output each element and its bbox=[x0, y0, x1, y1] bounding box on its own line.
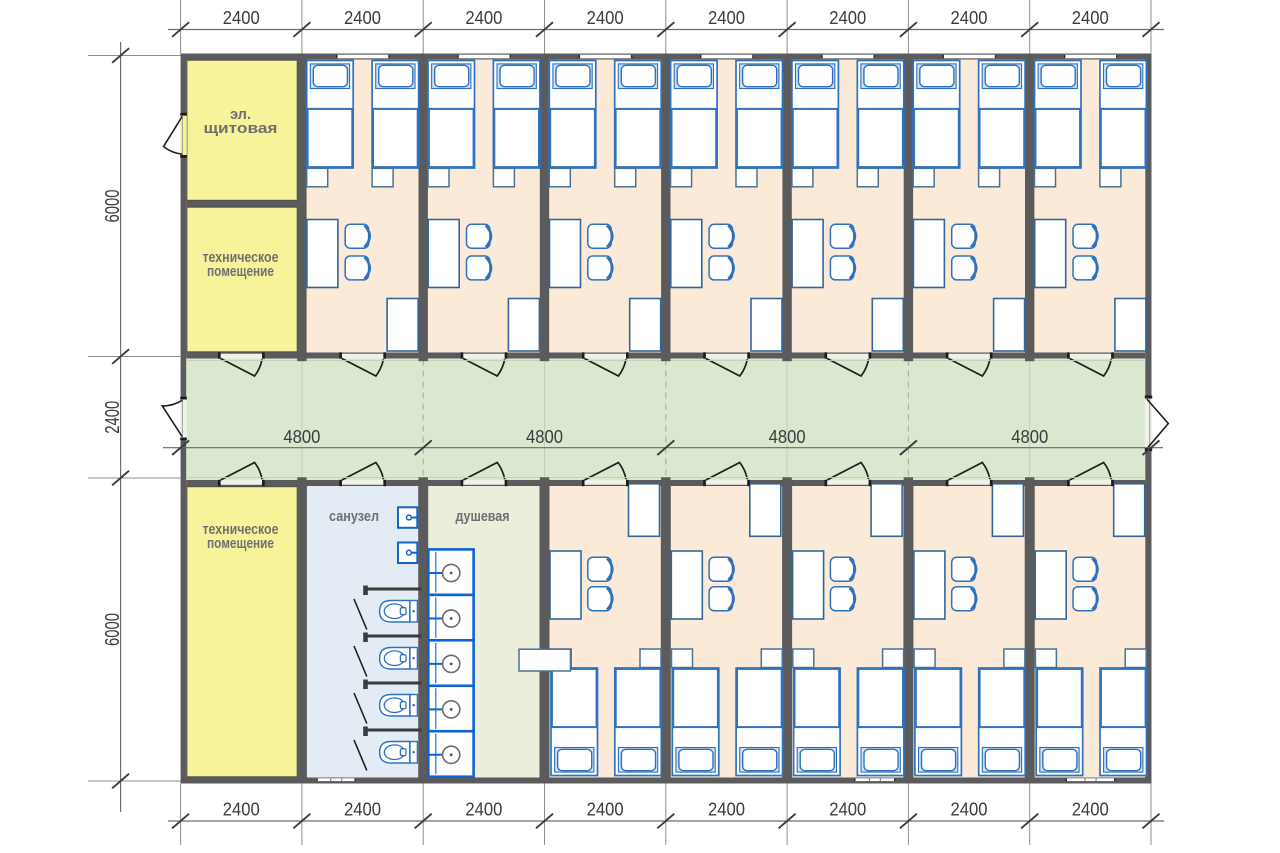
svg-text:2400: 2400 bbox=[465, 799, 502, 820]
svg-text:2400: 2400 bbox=[829, 799, 866, 820]
svg-text:2400: 2400 bbox=[102, 401, 124, 434]
svg-text:2400: 2400 bbox=[708, 799, 745, 820]
svg-text:2400: 2400 bbox=[951, 799, 988, 820]
svg-text:2400: 2400 bbox=[465, 7, 502, 28]
svg-text:2400: 2400 bbox=[829, 7, 866, 28]
svg-text:помещение: помещение bbox=[207, 536, 274, 552]
svg-text:2400: 2400 bbox=[223, 7, 260, 28]
svg-text:4800: 4800 bbox=[1011, 426, 1048, 447]
svg-text:2400: 2400 bbox=[1072, 799, 1109, 820]
svg-text:4800: 4800 bbox=[769, 426, 806, 447]
svg-text:помещение: помещение bbox=[207, 264, 274, 280]
svg-text:душевая: душевая bbox=[456, 509, 510, 525]
svg-text:6000: 6000 bbox=[102, 613, 124, 646]
svg-text:2400: 2400 bbox=[1072, 7, 1109, 28]
svg-text:6000: 6000 bbox=[102, 190, 124, 223]
svg-text:2400: 2400 bbox=[708, 7, 745, 28]
svg-text:санузел: санузел bbox=[329, 509, 379, 525]
svg-text:2400: 2400 bbox=[951, 7, 988, 28]
svg-text:4800: 4800 bbox=[526, 426, 563, 447]
svg-text:4800: 4800 bbox=[283, 426, 320, 447]
svg-text:2400: 2400 bbox=[587, 7, 624, 28]
svg-text:щитовая: щитовая bbox=[204, 121, 278, 137]
svg-text:2400: 2400 bbox=[223, 799, 260, 820]
svg-text:2400: 2400 bbox=[344, 799, 381, 820]
svg-text:2400: 2400 bbox=[344, 7, 381, 28]
svg-text:2400: 2400 bbox=[587, 799, 624, 820]
